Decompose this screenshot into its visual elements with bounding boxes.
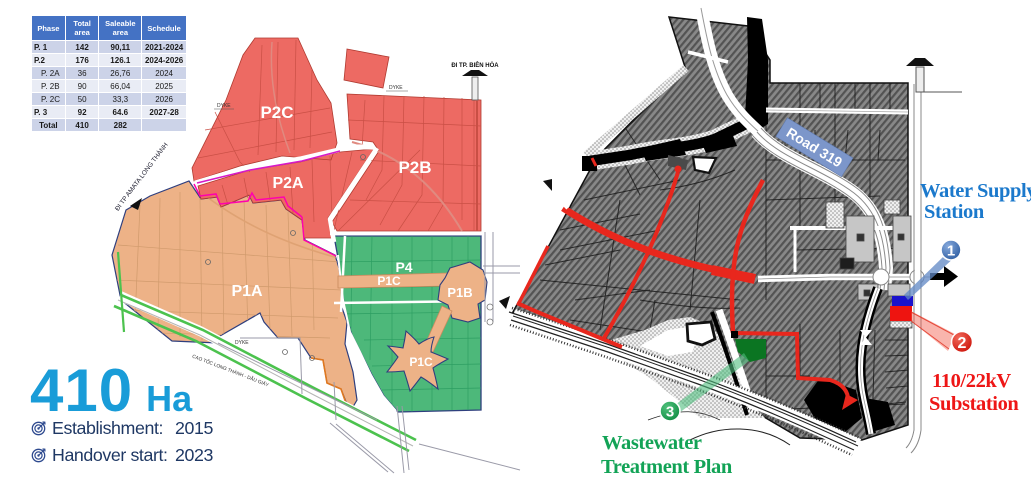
svg-text:DYKE: DYKE <box>389 85 403 91</box>
svg-text:1: 1 <box>947 243 955 260</box>
svg-text:P1C: P1C <box>409 355 433 369</box>
svg-text:Wastewater: Wastewater <box>602 432 702 454</box>
svg-text:P1C: P1C <box>377 274 401 288</box>
svg-text:P2B: P2B <box>398 158 431 177</box>
svg-text:Treatment Plan: Treatment Plan <box>601 456 733 478</box>
svg-text:P1A: P1A <box>231 283 263 300</box>
svg-text:Station: Station <box>924 201 985 223</box>
svg-text:P1B: P1B <box>447 285 472 300</box>
svg-text:P2A: P2A <box>272 175 304 192</box>
svg-text:DYKE: DYKE <box>235 340 249 346</box>
svg-text:3: 3 <box>666 404 674 421</box>
svg-text:Water Supply: Water Supply <box>920 180 1031 202</box>
svg-text:P2C: P2C <box>260 103 293 122</box>
svg-text:P4: P4 <box>395 259 412 275</box>
svg-text:DYKE: DYKE <box>217 103 231 109</box>
svg-text:110/22kV: 110/22kV <box>932 370 1011 392</box>
svg-text:2: 2 <box>958 335 967 352</box>
svg-text:ĐI TP. BIÊN HÒA: ĐI TP. BIÊN HÒA <box>451 61 499 69</box>
svg-text:Substation: Substation <box>929 393 1019 415</box>
